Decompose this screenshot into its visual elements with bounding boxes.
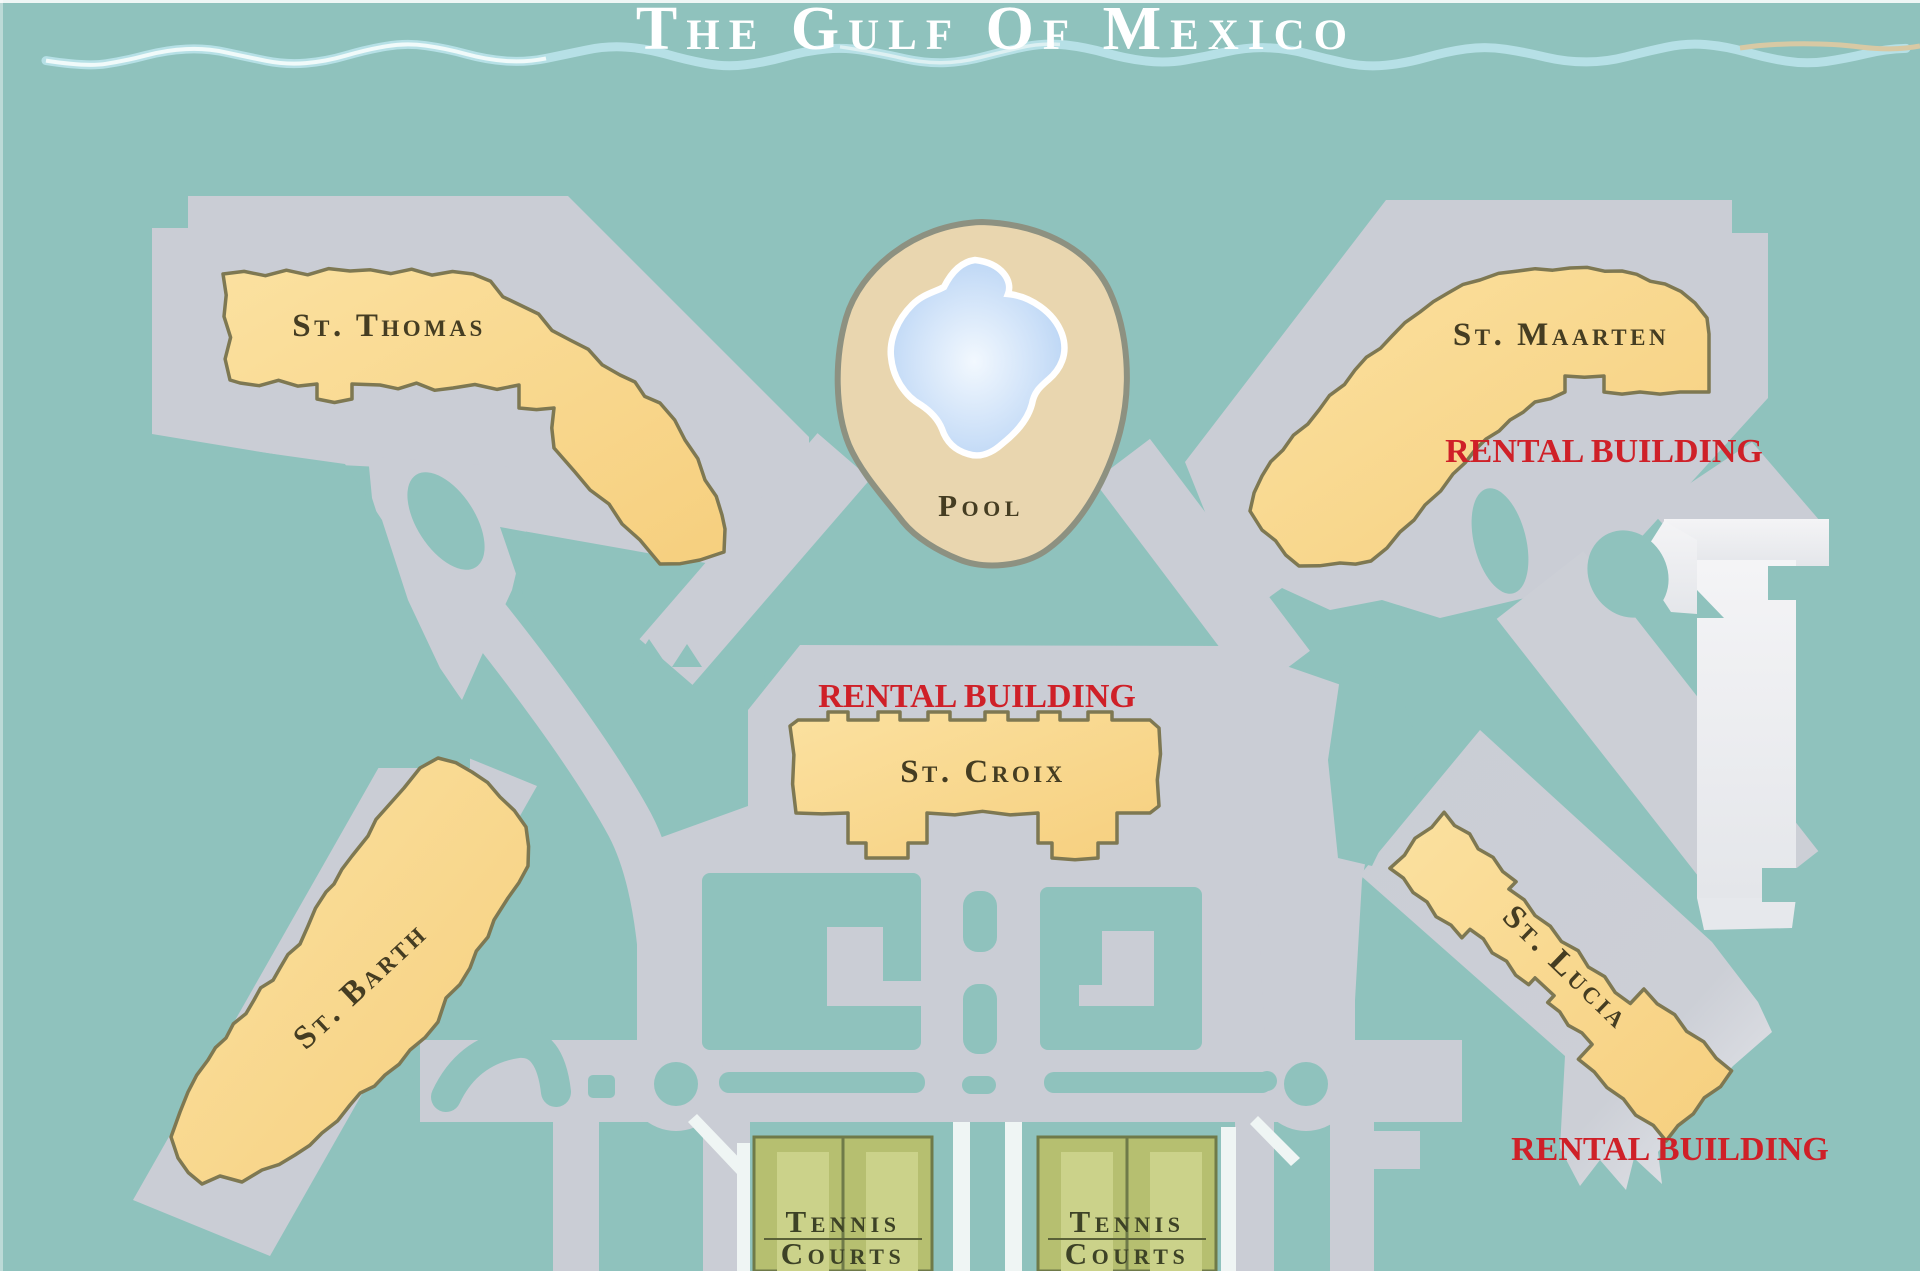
svg-text:St. Croix: St. Croix xyxy=(900,754,1066,790)
svg-text:Pool: Pool xyxy=(938,488,1024,523)
svg-text:St. Maarten: St. Maarten xyxy=(1453,317,1669,353)
svg-text:St. Thomas: St. Thomas xyxy=(292,308,486,344)
svg-text:RENTAL BUILDING: RENTAL BUILDING xyxy=(1445,433,1763,470)
svg-text:RENTAL BUILDING: RENTAL BUILDING xyxy=(818,678,1136,715)
svg-text:The Gulf Of Mexico: The Gulf Of Mexico xyxy=(636,0,1356,63)
svg-text:Courts: Courts xyxy=(781,1236,905,1271)
svg-text:Tennis: Tennis xyxy=(786,1204,901,1239)
svg-text:Courts: Courts xyxy=(1065,1236,1189,1271)
svg-text:RENTAL BUILDING: RENTAL BUILDING xyxy=(1511,1131,1829,1168)
svg-text:Tennis: Tennis xyxy=(1070,1204,1185,1239)
